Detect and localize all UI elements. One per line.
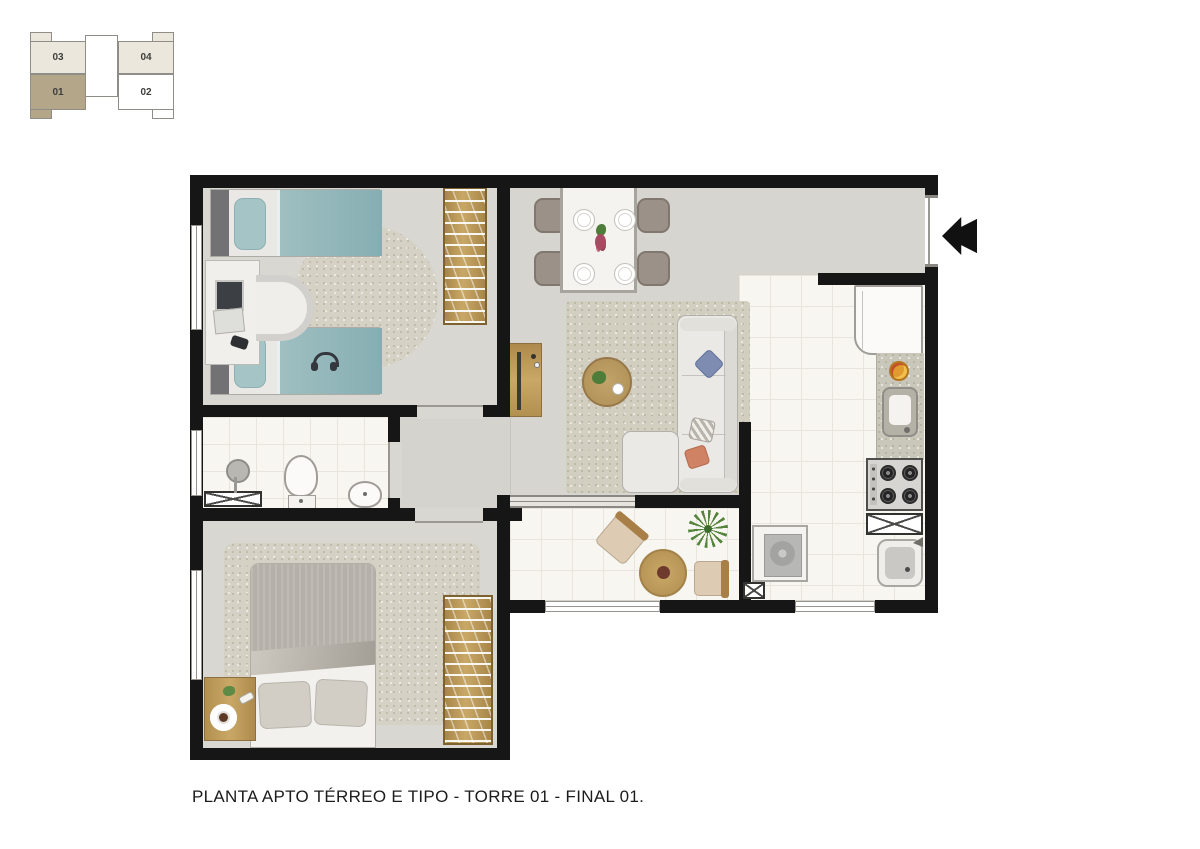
bedside-table (204, 677, 256, 741)
plate (573, 263, 595, 285)
table-cup (612, 383, 624, 395)
plant-sprig (223, 686, 235, 696)
balcony-sliding-door (510, 495, 635, 508)
wall-bedroom1-right (497, 175, 510, 417)
fridge-door-line (862, 291, 863, 349)
double-bed (250, 563, 376, 748)
dining-chair (637, 198, 670, 233)
service-window (795, 601, 875, 612)
locator-unit-01-label: 01 (52, 87, 63, 98)
wall-kitchen-top (818, 273, 938, 285)
wall-bottom-c (875, 600, 938, 613)
bathroom-door (388, 442, 402, 498)
sofa-armrest (680, 478, 736, 491)
bed-blanket (277, 190, 382, 256)
service-hatch (743, 582, 765, 599)
dining-table (560, 183, 637, 293)
shower-head (226, 459, 250, 483)
locator-unit-01[interactable]: 01 (30, 74, 86, 110)
stove-burner (902, 465, 918, 481)
fridge (854, 285, 923, 355)
locator-unit-04-label: 04 (140, 52, 151, 63)
bed-headboard (211, 190, 229, 256)
locator-unit-02[interactable]: 02 (118, 74, 174, 110)
faucet (904, 427, 910, 433)
stove-burner (902, 488, 918, 504)
tub-drain (905, 567, 910, 572)
coffee-cup (219, 713, 228, 722)
centerpiece-flowers (595, 234, 606, 250)
shower-arm (234, 477, 237, 493)
wall-bedroom1-bottom-b (483, 405, 510, 417)
sink-basin (889, 395, 911, 425)
locator-core (85, 35, 118, 97)
plan-caption: PLANTA APTO TÉRREO E TIPO - TORRE 01 - F… (192, 787, 644, 807)
balcony-chair (694, 561, 727, 596)
table-plant (592, 371, 606, 384)
locator-unit-03[interactable]: 03 (30, 41, 86, 74)
toilet-bowl (284, 455, 318, 497)
wall-top (190, 175, 938, 188)
balcony-table (639, 549, 687, 597)
wall-bathroom-right-a (388, 417, 400, 442)
sideboard-slot (517, 352, 521, 410)
wall-bottom-left (190, 748, 510, 760)
table-decor (657, 566, 670, 579)
sideboard-decor (531, 354, 536, 359)
sink-drain-dot (363, 492, 367, 496)
dining-chair (637, 251, 670, 286)
bedroom1-door (417, 405, 483, 419)
phone (230, 335, 250, 351)
plant-center (704, 525, 712, 533)
wall-right-lower (925, 267, 938, 613)
slider-rail (510, 501, 635, 502)
laptop-keyboard (213, 307, 245, 334)
locator-unit-03-label: 03 (52, 52, 63, 63)
cabinet-hatch (866, 513, 923, 535)
bathroom-window (191, 430, 202, 496)
kitchen-sink (882, 387, 918, 437)
stove-burner (880, 465, 896, 481)
headphone-earcup (330, 362, 337, 371)
sofa-armrest (680, 318, 736, 331)
washing-machine (752, 525, 808, 582)
laptop-screen (215, 280, 244, 311)
plate (614, 263, 636, 285)
locator-unit-02-label: 02 (140, 87, 151, 98)
plate (614, 209, 636, 231)
sofa-pillow-striped (688, 417, 716, 444)
wall-bottom-b (660, 600, 795, 613)
bedroom1-wardrobe (443, 187, 487, 325)
sofa (677, 315, 738, 493)
bedroom1-window (191, 225, 202, 330)
remote (238, 691, 255, 705)
shower-box (204, 491, 262, 507)
balcony-plant (688, 510, 728, 548)
hall-floor (388, 417, 510, 508)
floor-plan (190, 175, 938, 760)
bed-pillow (234, 198, 266, 250)
wall-mid-a (190, 508, 415, 521)
toilet-flush-dot (299, 499, 303, 503)
wall-bedroom1-bottom-a (190, 405, 417, 417)
floorplan-page: 03 04 01 02 (0, 0, 1200, 849)
chair-wood-back (721, 560, 729, 598)
tub-basin (885, 547, 915, 579)
coffee-table (582, 357, 632, 407)
bed-pillow (258, 681, 312, 730)
wall-right-upper (925, 175, 938, 195)
stove-controls (870, 464, 877, 505)
fruit-bowl (889, 361, 909, 381)
entrance-door-opening[interactable] (925, 195, 938, 267)
building-locator: 03 04 01 02 (0, 0, 200, 140)
bed-pillow (314, 679, 368, 728)
bedroom2-door (415, 508, 483, 523)
wall-bedroom2-right (497, 508, 510, 760)
stove-burner (880, 488, 896, 504)
entrance-arrow-icon (942, 217, 977, 255)
wall-living-balcony (635, 495, 751, 508)
sofa-backrest (724, 320, 737, 488)
single-bed-top (210, 189, 380, 257)
bedroom2-wardrobe (443, 595, 493, 745)
entrance-door-leaf (928, 198, 930, 264)
laundry-tub (877, 539, 923, 587)
sofa-chaise (622, 431, 679, 493)
sideboard-decor (534, 362, 540, 368)
plate (573, 209, 595, 231)
washer-drum (770, 541, 795, 566)
desk (205, 260, 260, 365)
balcony-window (545, 601, 660, 612)
headphone-earcup (311, 362, 318, 371)
wall-bottom-a (500, 600, 545, 613)
bedroom2-window (191, 570, 202, 680)
locator-unit-04[interactable]: 04 (118, 41, 174, 74)
stove (866, 458, 923, 511)
